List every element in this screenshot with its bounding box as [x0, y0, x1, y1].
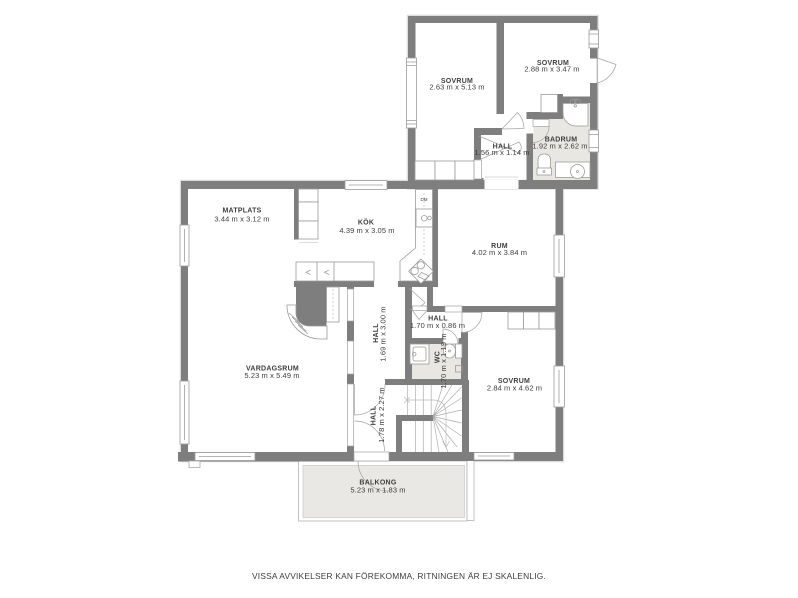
svg-text:1.56 m x 1.14 m: 1.56 m x 1.14 m: [474, 148, 529, 157]
svg-text:1.78 m x 2.27 m: 1.78 m x 2.27 m: [377, 387, 386, 442]
svg-text:2.84 m x 4.62 m: 2.84 m x 4.62 m: [487, 384, 542, 393]
svg-text:3.44 m x 3.12 m: 3.44 m x 3.12 m: [214, 215, 269, 224]
svg-text:2.88 m x 3.47 m: 2.88 m x 3.47 m: [524, 65, 579, 74]
svg-text:1.69 m x 3.00 m: 1.69 m x 3.00 m: [379, 306, 388, 361]
svg-text:1.70 m x 0.86 m: 1.70 m x 0.86 m: [410, 321, 465, 330]
svg-text:VISSA AVVIKELSER KAN FÖREKOMMA: VISSA AVVIKELSER KAN FÖREKOMMA, RITNINGE…: [252, 571, 546, 581]
svg-text:DM: DM: [421, 197, 428, 202]
svg-text:MATPLATS: MATPLATS: [222, 208, 261, 215]
svg-text:5.23 m x 1.83 m: 5.23 m x 1.83 m: [350, 486, 405, 495]
svg-text:4.02 m x 3.84 m: 4.02 m x 3.84 m: [472, 248, 527, 257]
svg-text:5.23 m x 5.49 m: 5.23 m x 5.49 m: [244, 371, 299, 380]
svg-text:1.70 m x 1.19 m: 1.70 m x 1.19 m: [439, 333, 448, 388]
svg-text:1.92 m x 2.62 m: 1.92 m x 2.62 m: [532, 142, 587, 151]
svg-text:4.39 m x 3.05 m: 4.39 m x 3.05 m: [339, 226, 394, 235]
svg-text:2.63 m x 5.13 m: 2.63 m x 5.13 m: [429, 83, 484, 92]
